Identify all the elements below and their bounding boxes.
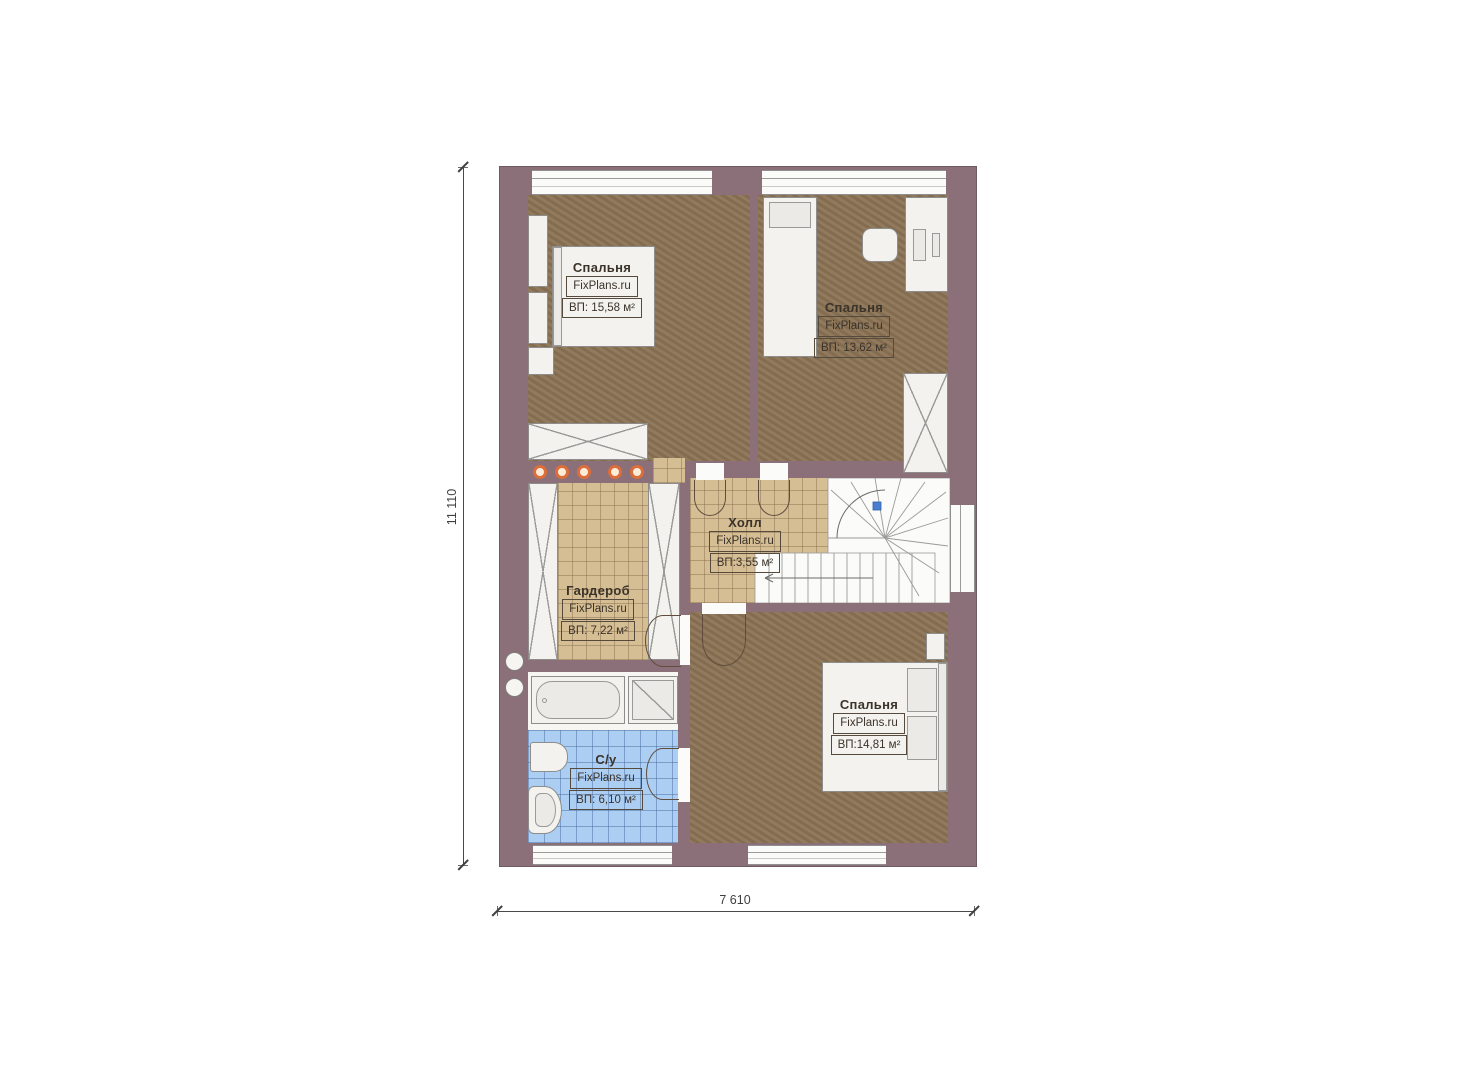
door-leaf-wardrobe [645, 615, 681, 667]
room-area: ВП: 13,62 м² [814, 338, 894, 359]
door-opening-bedroom-bottom [702, 603, 746, 614]
bed-pillow [769, 202, 811, 228]
room-name: Холл [728, 515, 762, 530]
brand-label: FixPlans.ru [562, 599, 634, 620]
door-leaf-bedroom-bottom [702, 614, 746, 666]
room-label-bedroom-top-right: Спальня FixPlans.ru ВП: 13,62 м² [810, 300, 898, 358]
room-label-bedroom-top-left: Спальня FixPlans.ru ВП: 15,58 м² [556, 260, 648, 318]
window-top-right [762, 170, 946, 195]
dimension-height: 11 110 [445, 474, 459, 540]
wardrobe-unit [903, 373, 948, 473]
dimension-width: 7 610 [702, 893, 768, 907]
desk [905, 197, 948, 292]
brand-label: FixPlans.ru [570, 768, 642, 789]
spotlight-icon [608, 465, 622, 479]
shower-cabin [628, 676, 678, 724]
dimension-line-vertical [463, 167, 464, 865]
door-leaf-hall-right [758, 480, 790, 516]
nightstand [926, 633, 945, 660]
window-bottom-left [533, 845, 672, 865]
door-opening-wardrobe [680, 615, 690, 665]
room-label-wardrobe: Гардероб FixPlans.ru ВП: 7,22 м² [552, 583, 644, 641]
stair-marker [873, 502, 881, 510]
spotlight-icon [533, 465, 547, 479]
room-area: ВП: 15,58 м² [562, 298, 642, 319]
room-area: ВП:14,81 м² [831, 735, 908, 756]
wall-stack-icon [505, 678, 524, 697]
floor-plan: Спальня FixPlans.ru ВП: 15,58 м² Спальня… [500, 167, 976, 866]
window-top-left [532, 170, 712, 195]
dresser [528, 423, 648, 460]
monitor [913, 229, 926, 261]
spotlight-icon [630, 465, 644, 479]
brand-label: FixPlans.ru [566, 276, 638, 297]
nightstand [528, 347, 554, 375]
desk-chair [862, 228, 898, 262]
room-name: С/у [595, 752, 616, 767]
room-name: Спальня [825, 300, 883, 315]
door-opening-hall-left [696, 463, 724, 480]
brand-label: FixPlans.ru [818, 316, 890, 337]
window-stair [950, 505, 975, 592]
room-area: ВП:3,55 м² [710, 553, 780, 574]
canvas: Спальня FixPlans.ru ВП: 15,58 м² Спальня… [0, 0, 1474, 1080]
spotlight-icon [555, 465, 569, 479]
cabinet [528, 292, 548, 344]
door-opening-bathroom [678, 748, 690, 802]
sink-basin [535, 793, 556, 827]
room-label-hall: Холл FixPlans.ru ВП:3,55 м² [702, 515, 788, 573]
room-name: Спальня [573, 260, 631, 275]
room-name: Спальня [840, 697, 898, 712]
bed-headboard [938, 663, 947, 791]
door-opening-hall-right [760, 463, 788, 480]
bathtub-drain [542, 698, 547, 703]
dimension-line-horizontal [497, 911, 974, 912]
room-label-bedroom-bottom: Спальня FixPlans.ru ВП:14,81 м² [824, 697, 914, 755]
brand-label: FixPlans.ru [833, 713, 905, 734]
cabinet [528, 215, 548, 287]
room-area: ВП: 6,10 м² [569, 790, 643, 811]
room-name: Гардероб [566, 583, 630, 598]
door-leaf-hall-left [694, 480, 726, 516]
bathtub-basin [536, 681, 620, 719]
brand-label: FixPlans.ru [709, 531, 781, 552]
sink [528, 786, 562, 834]
keyboard [932, 233, 940, 257]
room-label-bathroom: С/у FixPlans.ru ВП: 6,10 м² [560, 752, 652, 810]
bathtub [531, 676, 625, 724]
hall-floor-patch [653, 458, 685, 483]
spotlight-icon [577, 465, 591, 479]
room-area: ВП: 7,22 м² [561, 621, 635, 642]
wall-stack-icon [505, 652, 524, 671]
single-bed [763, 197, 817, 357]
shower-tray [632, 680, 674, 720]
window-bottom-right [748, 845, 886, 865]
